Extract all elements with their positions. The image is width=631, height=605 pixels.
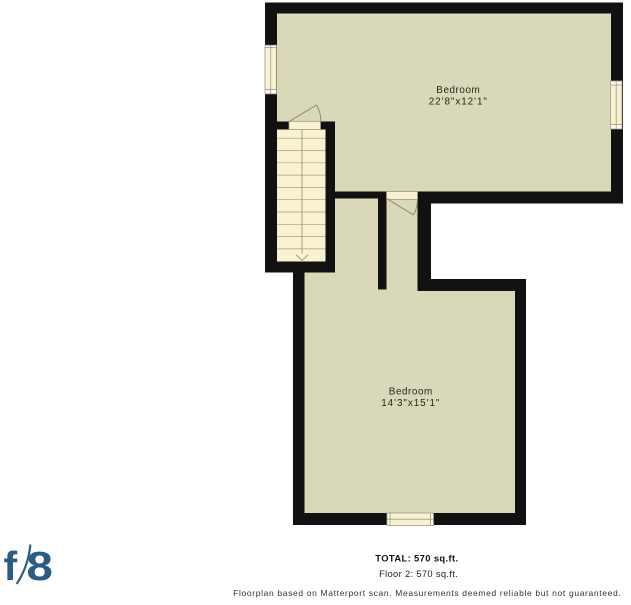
svg-text:Bedroom: Bedroom <box>389 387 433 398</box>
svg-text:f: f <box>4 543 18 589</box>
svg-text:Floorplan based on Matterport: Floorplan based on Matterport scan. Meas… <box>233 588 621 598</box>
svg-text:22'8"x12'1": 22'8"x12'1" <box>429 97 488 108</box>
svg-text:Floor 2: 570 sq.ft.: Floor 2: 570 sq.ft. <box>379 568 458 579</box>
svg-text:Bedroom: Bedroom <box>436 85 480 96</box>
svg-text:14'3"x15'1": 14'3"x15'1" <box>381 398 440 409</box>
svg-text:TOTAL: 570 sq.ft.: TOTAL: 570 sq.ft. <box>375 553 458 564</box>
